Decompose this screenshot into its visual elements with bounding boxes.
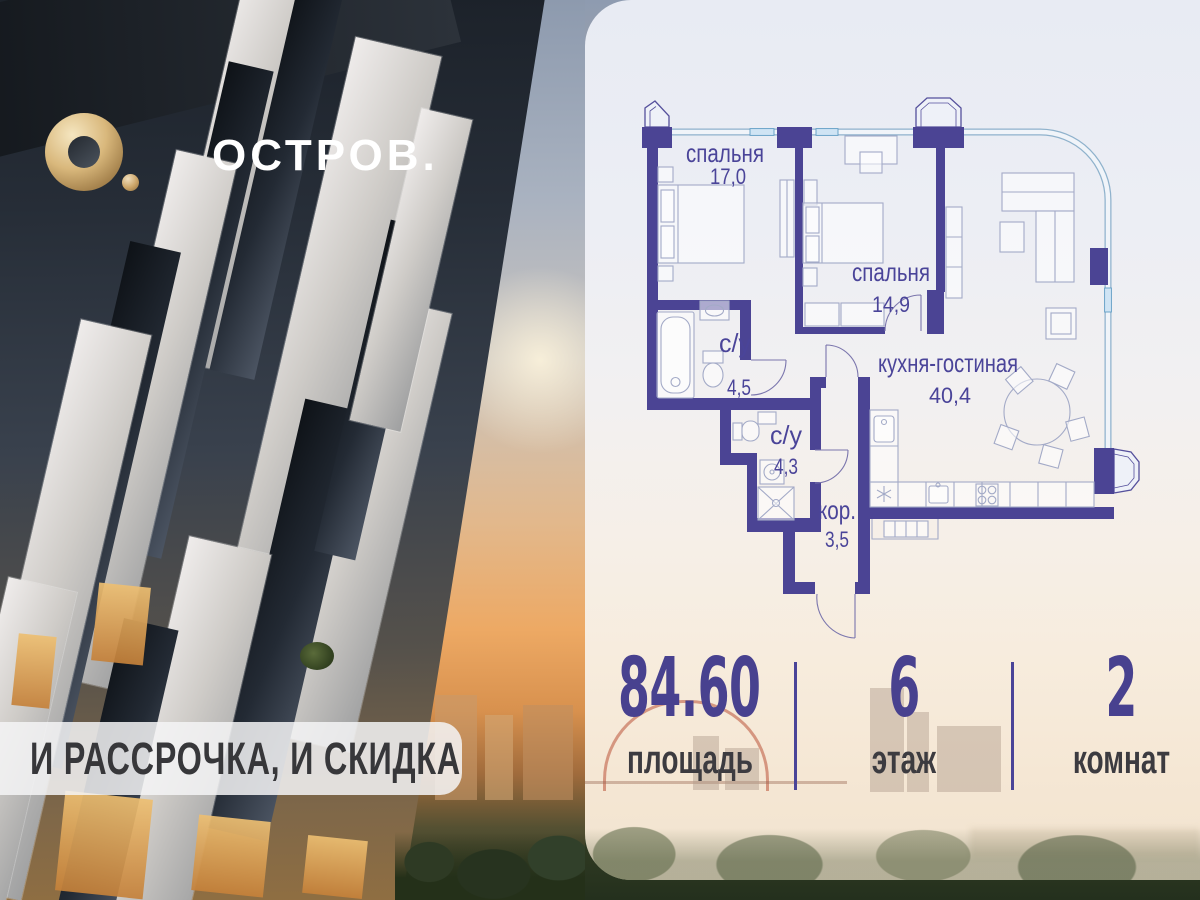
logo-dot-icon [122, 174, 139, 191]
room-area-label: 40,4 [929, 383, 971, 408]
lit-window [191, 814, 271, 897]
stat-floor-value: 6 [888, 648, 919, 730]
city-silhouette [485, 715, 513, 800]
lit-window [302, 835, 368, 899]
stat-area-label: площадь [627, 738, 753, 783]
stat-rooms-value: 2 [1105, 648, 1136, 730]
ad-poster: ОСТРОВ. И РАССРОЧКА, И СКИДКА [0, 0, 1200, 900]
city-silhouette [523, 705, 573, 800]
stat-area: 84.60 площадь [585, 648, 794, 818]
stat-rooms: 2 комнат [1014, 648, 1200, 818]
brand-name: ОСТРОВ. [212, 131, 439, 181]
lit-window [55, 791, 153, 900]
stat-area-value: 84.60 [618, 648, 760, 730]
room-name-label: с/у [719, 328, 751, 358]
lit-window [11, 633, 56, 709]
room-name-label: кор. [818, 495, 856, 525]
logo-ostrov-icon [45, 113, 123, 191]
room-area-label: 3,5 [825, 527, 849, 552]
promo-banner-text: И РАССРОЧКА, И СКИДКА [30, 733, 461, 785]
room-area-label: 14,9 [872, 292, 910, 317]
stat-floor-label: этаж [872, 738, 936, 783]
room-area-label: 4,3 [774, 454, 798, 479]
info-card: спальня 17,0 спальня 14,9 с/у 4,5 с/у 4,… [585, 0, 1200, 880]
lit-window [91, 582, 151, 665]
room-area-label: 4,5 [727, 375, 751, 400]
balcony-plant [300, 642, 334, 670]
apartment-stats: 84.60 площадь 6 этаж 2 комнат [585, 648, 1200, 818]
room-area-label: 17,0 [710, 164, 746, 189]
room-name-label: спальня [852, 257, 930, 287]
trees [395, 800, 585, 900]
stat-rooms-label: комнат [1072, 738, 1169, 783]
promo-banner: И РАССРОЧКА, И СКИДКА [0, 722, 462, 795]
room-name-label: кухня-гостиная [878, 348, 1018, 378]
stat-floor: 6 этаж [797, 648, 1011, 818]
room-name-label: с/у [770, 420, 802, 450]
